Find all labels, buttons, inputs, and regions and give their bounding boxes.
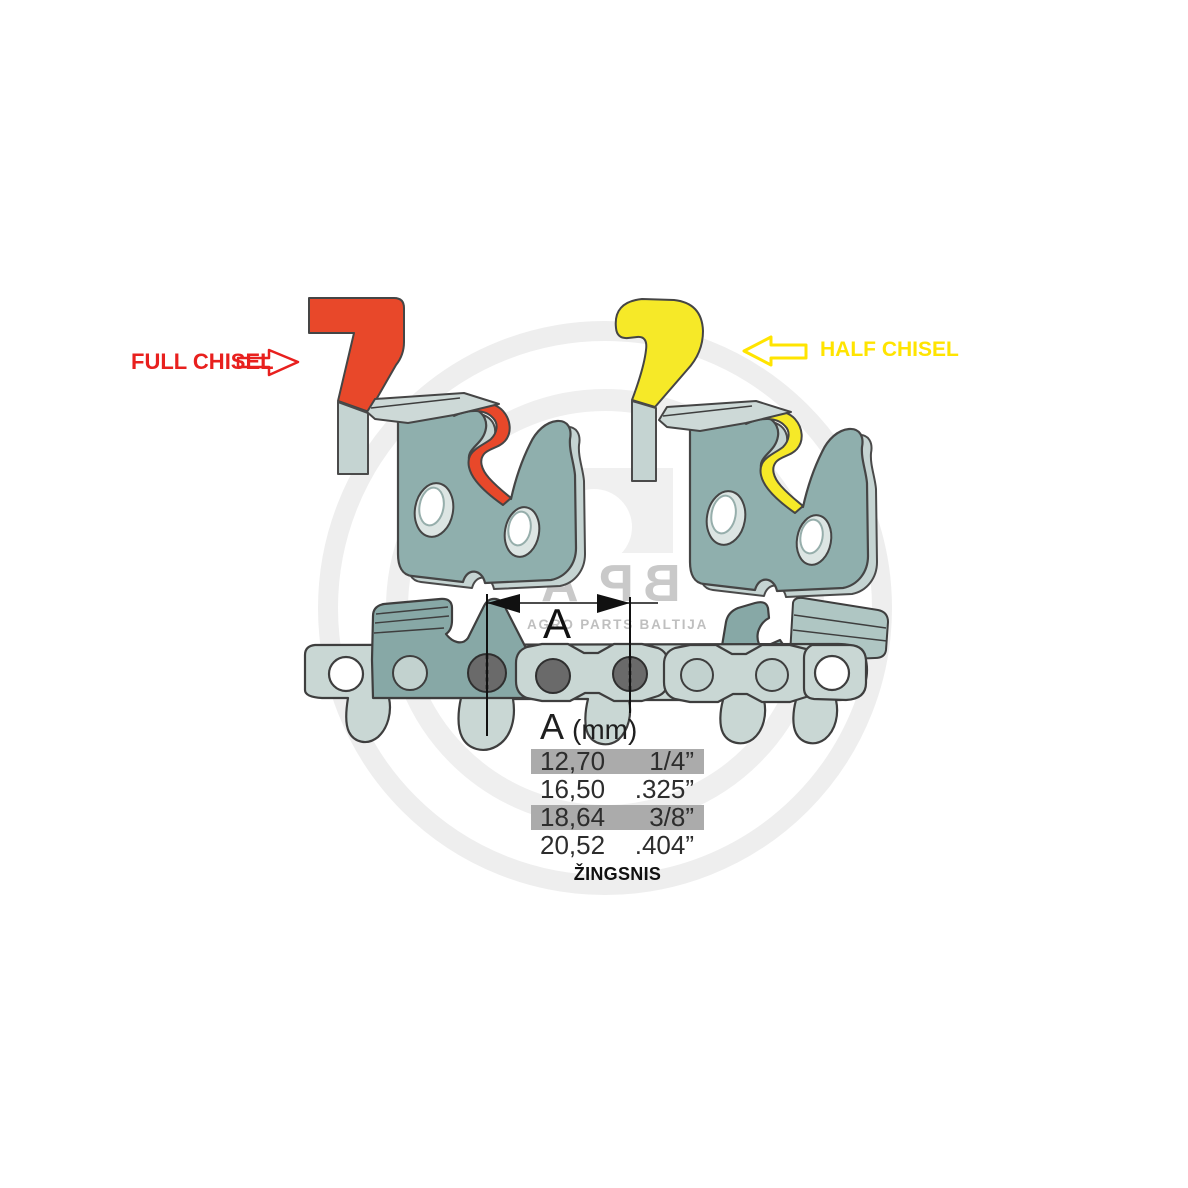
pitch-mm-value: 12,70 — [540, 749, 605, 774]
pitch-table-row: 18,64 3/8” — [531, 805, 704, 830]
pitch-table-header-letter: A — [540, 706, 564, 748]
pitch-inch-value: .404” — [635, 833, 694, 858]
pitch-table-row: 12,70 1/4” — [531, 749, 704, 774]
pitch-table-header-unit: (mm) — [572, 714, 637, 746]
chain-diagram-svg — [0, 0, 1188, 1188]
rivet-boss — [756, 659, 788, 691]
pitch-table-header: A (mm) — [540, 706, 637, 748]
pitch-inch-value: 3/8” — [649, 805, 694, 830]
pitch-dimension-label: A — [543, 600, 571, 648]
half-chisel-label: HALF CHISEL — [820, 338, 959, 362]
pitch-inch-value: .325” — [635, 777, 694, 802]
pitch-caption: ŽINGSNIS — [531, 864, 704, 885]
pitch-table-row: 20,52 .404” — [531, 833, 704, 858]
full-chisel-cutter-3d — [367, 393, 585, 589]
full-chisel-label: FULL CHISEL — [131, 349, 274, 375]
pitch-mm-value: 18,64 — [540, 805, 605, 830]
pitch-table-row: 16,50 .325” — [531, 777, 704, 802]
link-hole — [815, 656, 849, 690]
pitch-mm-value: 16,50 — [540, 777, 605, 802]
half-chisel-arrow-icon — [744, 337, 806, 365]
rivet — [536, 659, 570, 693]
chain-pitch-diagram: APB AGRO PARTS BALTIJA — [0, 0, 1188, 1188]
pitch-mm-value: 20,52 — [540, 833, 605, 858]
dimension-arrowhead-right — [597, 594, 630, 613]
rivet-boss — [681, 659, 713, 691]
pitch-inch-value: 1/4” — [649, 749, 694, 774]
rivet-boss — [393, 656, 427, 690]
link-hole — [329, 657, 363, 691]
half-chisel-cutter-3d — [659, 401, 877, 597]
